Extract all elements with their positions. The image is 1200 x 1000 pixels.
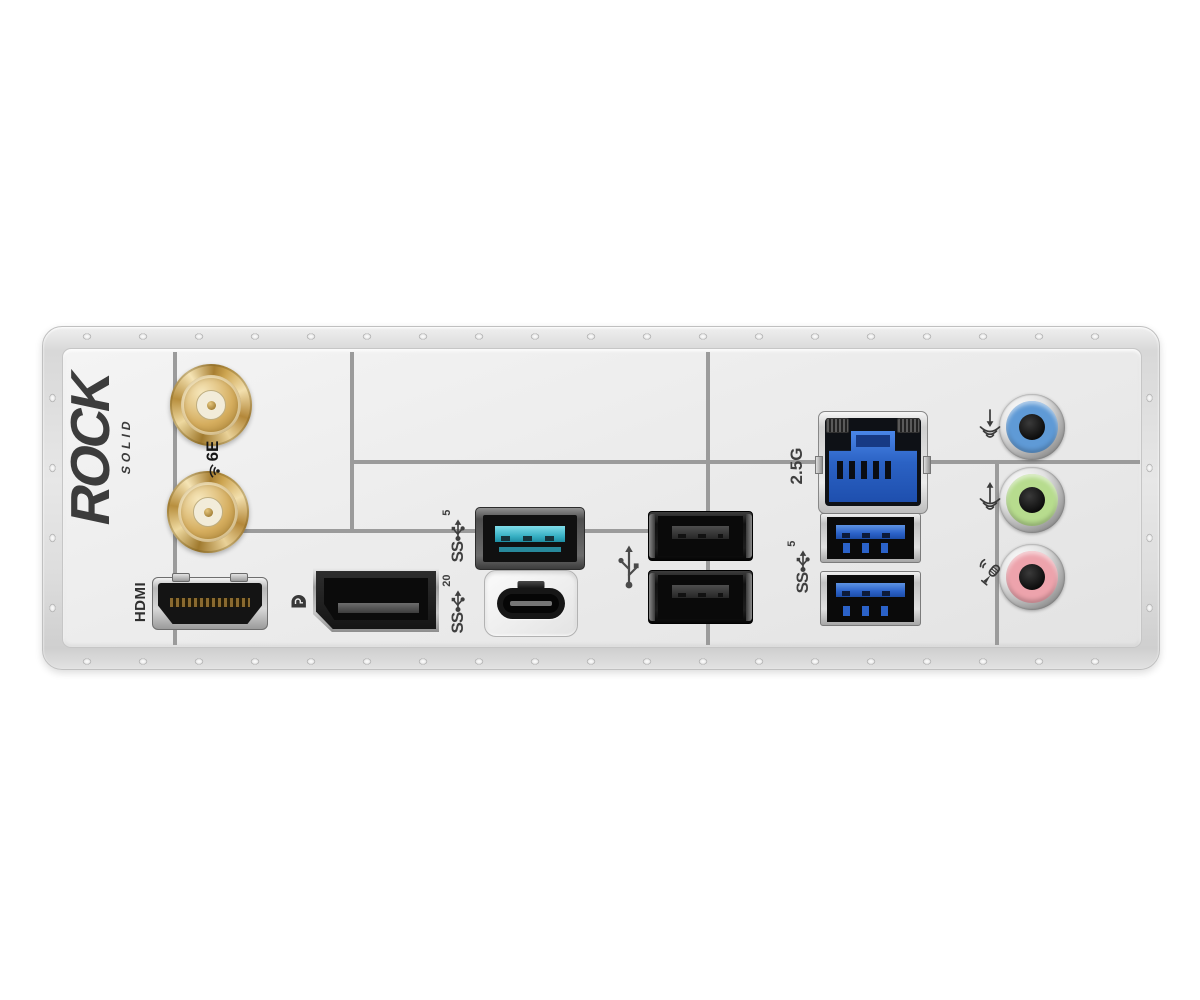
shield-rivets-left	[46, 363, 59, 613]
divider-vertical-2	[350, 352, 354, 533]
wifi-arcs-icon	[205, 463, 221, 479]
divider-horizontal-2	[175, 529, 708, 533]
usb-3-port-top	[820, 513, 921, 563]
audio-jack-mic	[999, 544, 1065, 610]
shield-rivets-bottom	[59, 655, 1143, 668]
usb-teal-tongue	[495, 526, 565, 542]
brand-subtitle: SOLID	[119, 416, 133, 476]
rock-solid-logo: ROCK SOLID	[63, 364, 135, 534]
lan-speed-label: 2.5G	[783, 436, 811, 496]
ethernet-rj45-port	[818, 411, 928, 514]
usb-2-port-top	[648, 511, 753, 561]
dp-contact-bar	[338, 603, 419, 613]
microphone-icon	[971, 556, 1007, 599]
wifi-6e-logo: 6E	[196, 436, 230, 484]
hdmi-mount-tab	[230, 573, 248, 582]
hdmi-port	[152, 577, 268, 630]
hdmi-label: HDMI	[129, 576, 151, 628]
hdmi-pins	[170, 598, 249, 607]
usb-3-port-bottom	[820, 571, 921, 626]
lan-led-right	[897, 418, 920, 433]
usb-a-5gbps-port	[475, 507, 585, 570]
usb-c-port	[484, 570, 578, 637]
shield-rivets-right	[1143, 363, 1156, 613]
lan-led-left	[826, 418, 849, 433]
line-out-icon	[975, 481, 1005, 520]
usb-c-tongue	[510, 601, 552, 606]
displayport-port	[313, 568, 439, 632]
usb3-5gbps-label: SS 5	[788, 536, 818, 598]
usb-2-port-bottom	[648, 570, 753, 624]
hdmi-mount-tab	[172, 573, 190, 582]
usb-5gbps-label: SS 5	[443, 505, 473, 567]
usb-20gbps-label: SS 20	[443, 570, 473, 638]
divider-horizontal-1	[352, 460, 1140, 464]
dp-logo-icon	[290, 594, 308, 610]
wifi-antenna-connector-upper	[170, 364, 252, 446]
usb-trident-icon	[795, 548, 811, 573]
shield-rivets-top	[59, 330, 1143, 343]
brand-name: ROCK	[65, 369, 116, 530]
displayport-logo	[289, 592, 309, 612]
audio-jack-line-out	[999, 467, 1065, 533]
usb-trident-icon	[450, 588, 466, 613]
rj45-pins	[837, 461, 892, 479]
usb-2-trident-icon	[612, 542, 646, 595]
audio-jack-line-in	[999, 394, 1065, 460]
wifi-6e-text: 6E	[203, 441, 223, 462]
rj45-insert	[829, 431, 917, 502]
usb-trident-icon	[450, 517, 466, 542]
line-in-icon	[975, 408, 1005, 447]
